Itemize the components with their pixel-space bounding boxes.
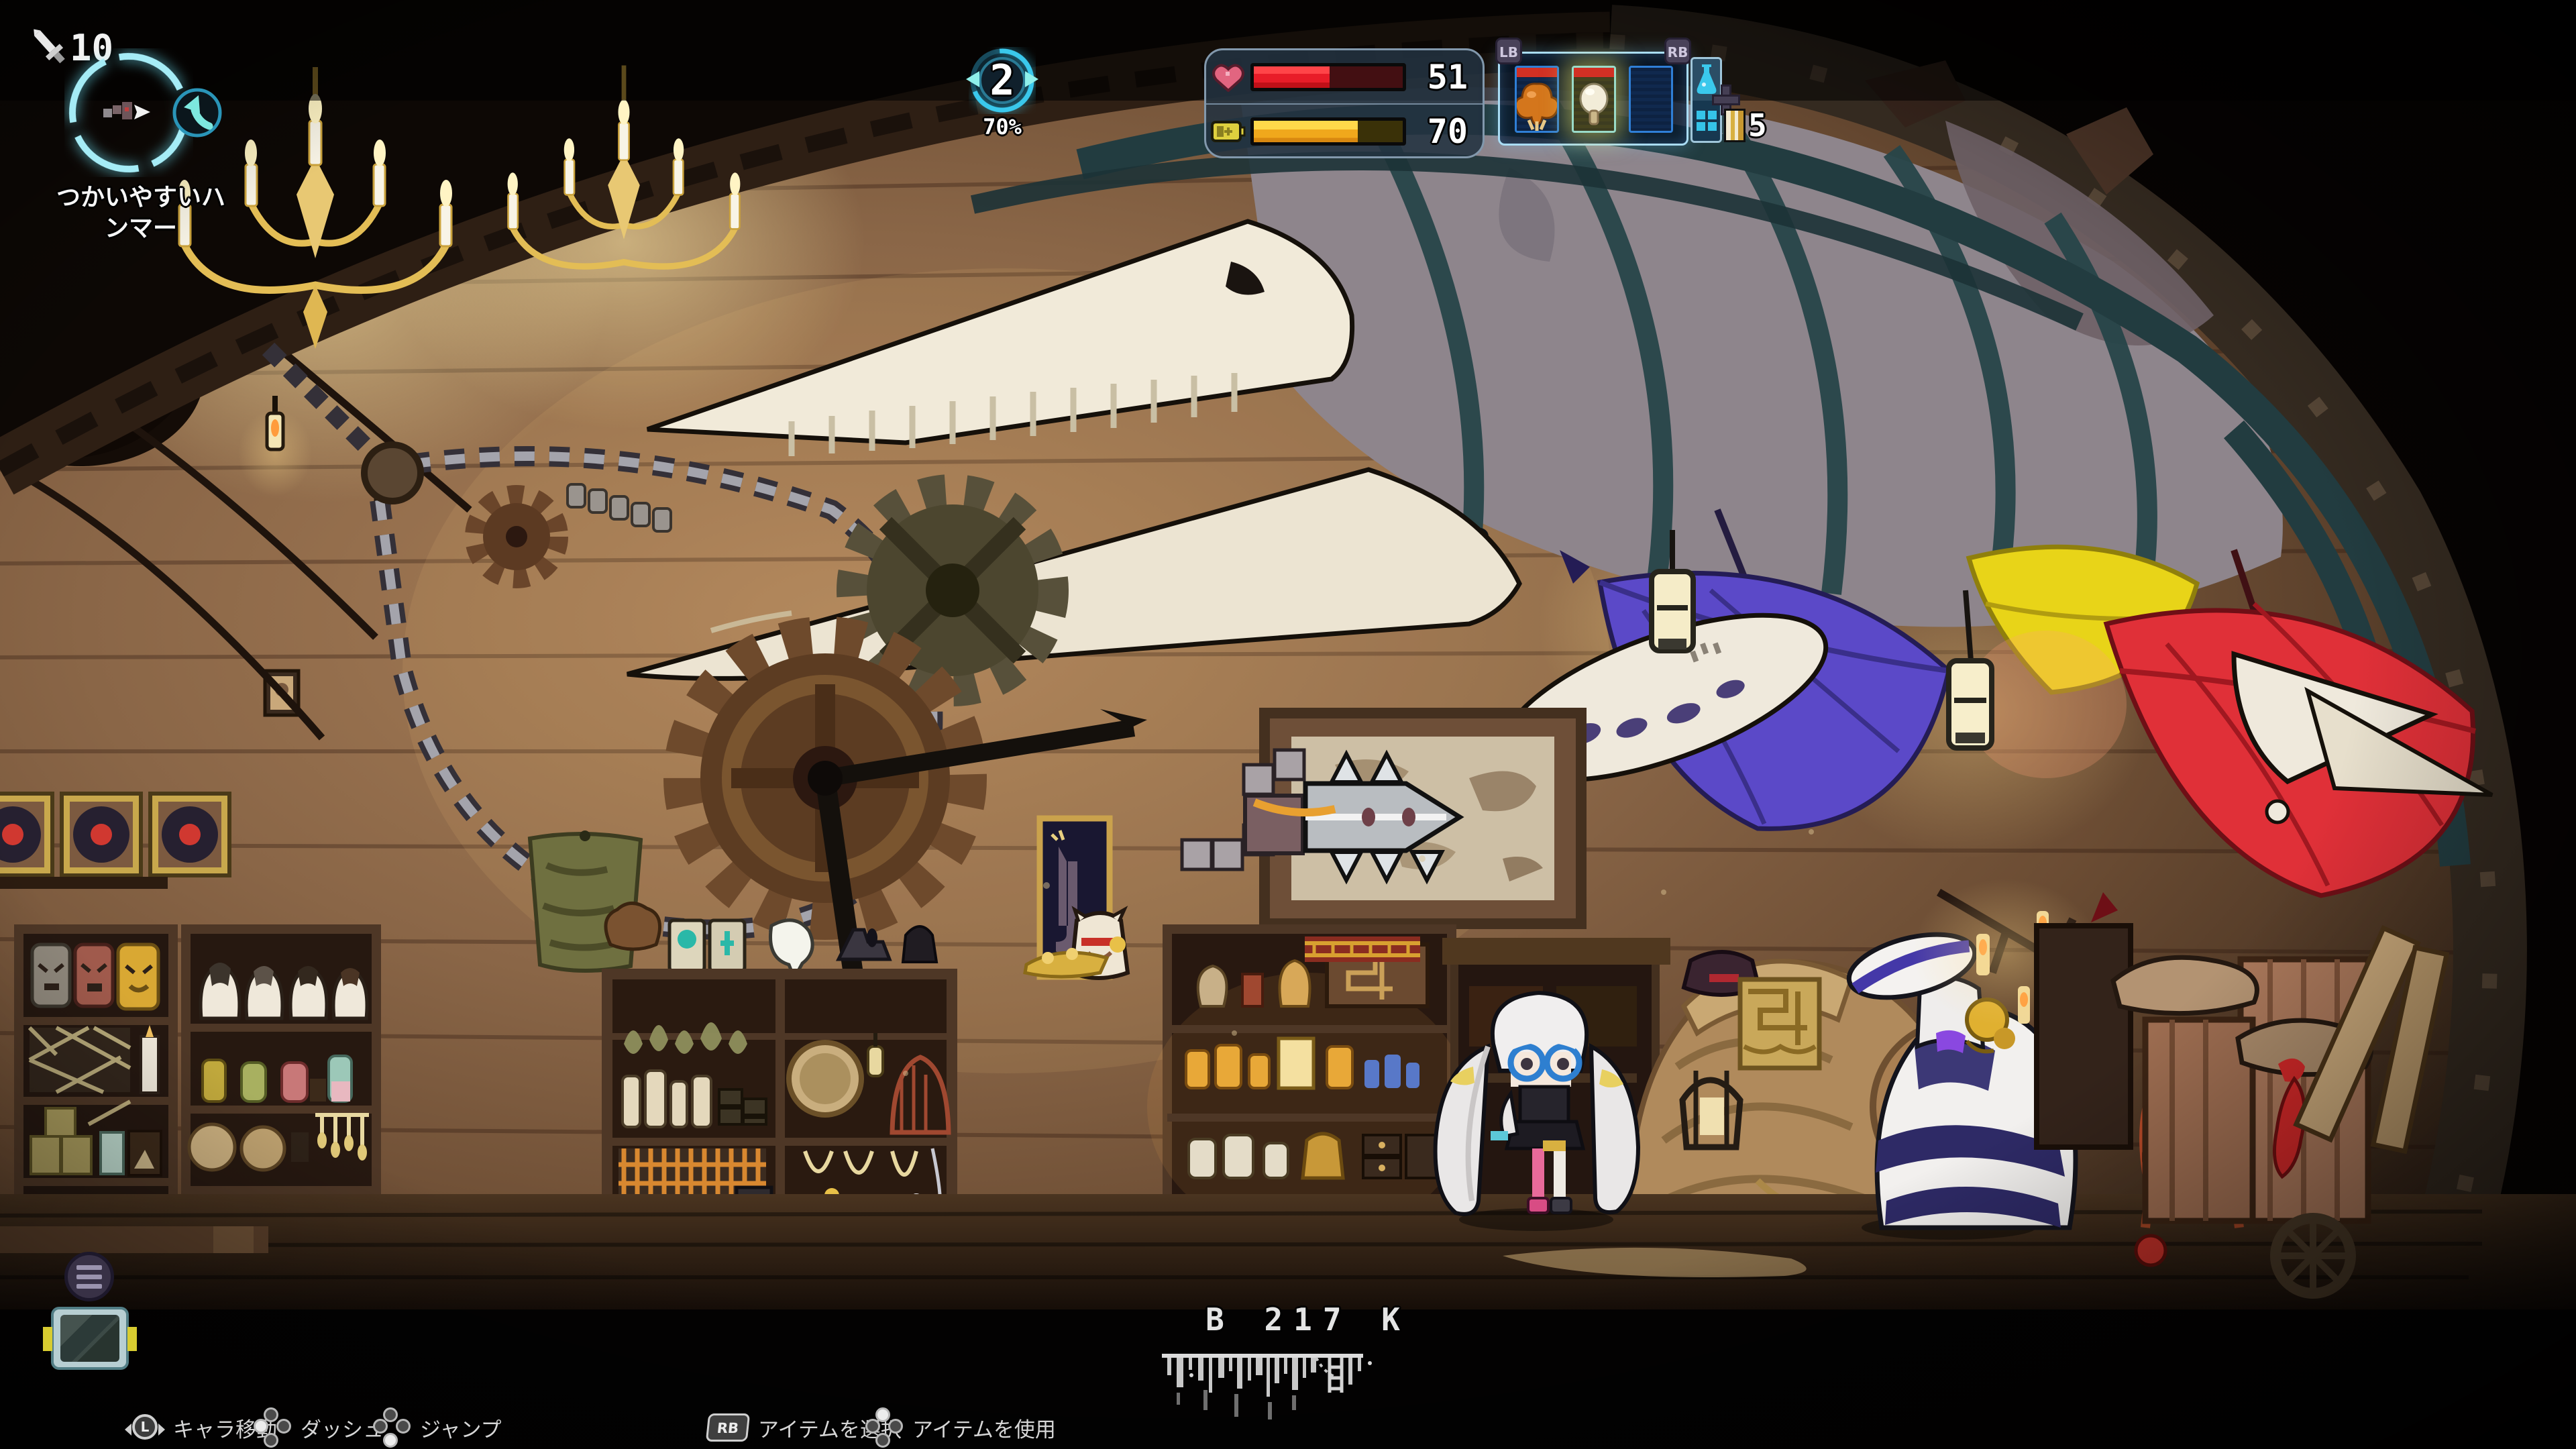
hint-jump-label: ジャンプ: [420, 1413, 502, 1443]
energy-bar-fill: [1254, 121, 1358, 142]
minimap-player-art: [103, 102, 150, 119]
lb-button-badge: LB: [1495, 38, 1522, 64]
hp-bar-fill: [1254, 66, 1330, 88]
hotbar-slot-2-selected[interactable]: [1572, 66, 1616, 133]
hint-jump: ジャンプ: [373, 1406, 502, 1449]
rb-button-badge: RB: [1664, 38, 1691, 64]
device-screen: [60, 1315, 119, 1362]
level-progress: 70%: [962, 114, 1042, 140]
rb-button-icon: RB: [706, 1413, 750, 1442]
rb-label: RB: [1668, 44, 1688, 60]
slot-header-strip: [1517, 68, 1557, 77]
item-name-line1: つかいやすいハ: [7, 182, 275, 213]
level-value: 2: [969, 52, 1036, 109]
energy-bar: [1250, 117, 1406, 146]
shop-scene: [0, 0, 2576, 1449]
hint-use-label: アイテムを使用: [912, 1413, 1056, 1443]
mushroom-item-icon: [1574, 78, 1614, 133]
hint-use-item: アイテムを使用: [865, 1406, 1056, 1449]
item-count: 5: [1748, 107, 1782, 144]
inventory-device-button[interactable]: [51, 1307, 129, 1370]
level-badge: 2 70%: [969, 47, 1036, 148]
vitals-panel: 51 70: [1204, 48, 1485, 158]
l-stick-icon: L: [126, 1409, 164, 1446]
gold-book-item: [1724, 109, 1746, 142]
item-hotbar: LB RB: [1498, 38, 1689, 148]
hp-value: 51: [1406, 58, 1483, 97]
rb-letter: RB: [716, 1420, 740, 1436]
device-side-tab: [127, 1327, 137, 1351]
slot-header-strip: [1574, 68, 1614, 77]
hint-dash-label: ダッシュ: [301, 1413, 384, 1443]
energy-value: 70: [1406, 112, 1483, 151]
face-buttons-top-icon: [865, 1407, 903, 1448]
depth-gauge-art: [1134, 1343, 1483, 1433]
menu-button[interactable]: [64, 1252, 114, 1301]
lb-label: LB: [1499, 44, 1518, 60]
item-name-line2: ンマー: [7, 213, 275, 244]
device-side-tab: [43, 1327, 52, 1351]
battery-icon: [1206, 118, 1250, 145]
depth-label: B 217 K: [1134, 1301, 1483, 1338]
hotbar-slot-1[interactable]: [1515, 66, 1559, 133]
heart-icon: [1206, 62, 1250, 92]
vignette: [0, 0, 2576, 1449]
hp-bar: [1250, 63, 1406, 91]
item-name-label: つかいやすいハ ンマー: [7, 182, 275, 244]
face-buttons-bottom-icon: [373, 1407, 411, 1448]
roasted-item-icon: [1517, 78, 1557, 133]
l-stick-letter: L: [132, 1414, 158, 1440]
face-buttons-left-icon: [254, 1407, 291, 1448]
game-screen: 10 つかいやすいハ ンマー 2 70%: [0, 0, 2576, 1449]
hint-dash: ダッシュ: [254, 1406, 384, 1449]
hotbar-slot-3-empty[interactable]: [1629, 66, 1673, 133]
jump-up-arrow-button[interactable]: [172, 87, 223, 141]
